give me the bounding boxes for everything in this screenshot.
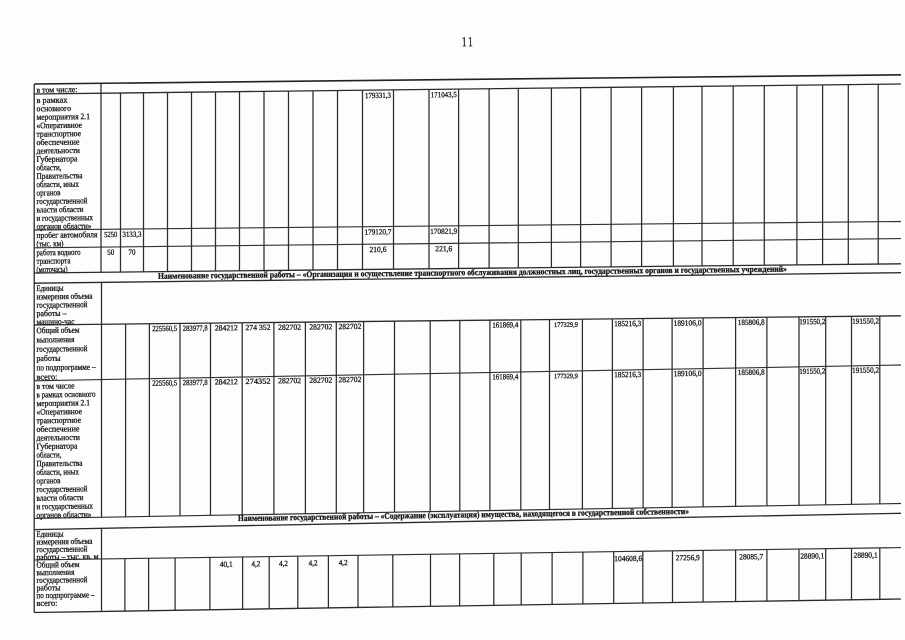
svg-text:191550,2: 191550,2 [799, 367, 825, 376]
svg-text:работы: работы [36, 354, 60, 363]
svg-text:161869,4: 161869,4 [492, 372, 518, 381]
svg-text:283977,8: 283977,8 [183, 324, 208, 333]
svg-text:70: 70 [128, 248, 135, 257]
svg-text:191550,2: 191550,2 [799, 317, 825, 326]
svg-text:284212: 284212 [215, 323, 238, 332]
svg-text:179331,3: 179331,3 [365, 91, 391, 100]
svg-text:189106,0: 189106,0 [674, 318, 702, 327]
svg-text:282702: 282702 [278, 323, 301, 332]
svg-text:282702: 282702 [309, 322, 332, 331]
svg-text:284212: 284212 [215, 377, 238, 386]
svg-text:государственной: государственной [36, 344, 88, 354]
svg-text:221,6: 221,6 [435, 244, 452, 253]
svg-text:28890,1: 28890,1 [800, 551, 824, 560]
svg-text:всего:: всего: [36, 372, 57, 381]
svg-text:5250: 5250 [104, 230, 117, 239]
svg-text:всего:: всего: [36, 599, 57, 608]
svg-text:189106,0: 189106,0 [674, 369, 702, 378]
svg-text:177329,9: 177329,9 [554, 373, 579, 380]
svg-text:191550,2: 191550,2 [852, 366, 879, 375]
svg-text:4,2: 4,2 [339, 558, 348, 567]
svg-text:40,1: 40,1 [220, 560, 233, 569]
svg-text:в том числе:: в том числе: [36, 85, 77, 95]
svg-text:185806,8: 185806,8 [738, 318, 765, 327]
svg-text:185806,8: 185806,8 [738, 368, 765, 377]
svg-text:161869,4: 161869,4 [492, 320, 518, 329]
svg-text:179120,7: 179120,7 [364, 227, 391, 236]
svg-text:1: 1 [462, 35, 467, 50]
svg-text:50: 50 [107, 248, 114, 257]
svg-text:282702: 282702 [338, 322, 361, 331]
svg-text:выполнения: выполнения [36, 335, 74, 345]
svg-text:274352: 274352 [245, 377, 270, 386]
svg-text:4,2: 4,2 [309, 558, 318, 567]
svg-text:177329,9: 177329,9 [554, 322, 579, 329]
svg-text:4,2: 4,2 [251, 559, 260, 568]
svg-text:283977,8: 283977,8 [183, 378, 208, 387]
svg-text:28890,1: 28890,1 [854, 551, 878, 560]
svg-text:225560,5: 225560,5 [152, 378, 177, 387]
svg-text:171043,5: 171043,5 [431, 90, 457, 99]
svg-text:27256,9: 27256,9 [676, 553, 700, 562]
svg-text:1: 1 [468, 35, 473, 50]
svg-text:185216,3: 185216,3 [614, 370, 641, 379]
svg-text:225560,5: 225560,5 [152, 324, 177, 333]
svg-text:3133,3: 3133,3 [122, 230, 141, 239]
svg-text:Общий объем: Общий объем [36, 326, 80, 336]
svg-text:185216,3: 185216,3 [614, 319, 641, 328]
svg-text:274 352: 274 352 [245, 323, 270, 332]
svg-text:191550,2: 191550,2 [852, 316, 879, 325]
svg-text:28085,7: 28085,7 [739, 552, 763, 561]
svg-text:(моточасы): (моточасы) [36, 265, 67, 274]
svg-text:210,6: 210,6 [369, 245, 386, 254]
svg-text:органов области»: органов области» [36, 510, 91, 520]
svg-text:170821,9: 170821,9 [430, 227, 457, 236]
svg-text:по подпрограмме –: по подпрограмме – [36, 363, 96, 373]
svg-text:282702: 282702 [278, 376, 301, 385]
svg-text:104608,6: 104608,6 [614, 554, 642, 563]
svg-text:4,2: 4,2 [279, 559, 288, 568]
svg-text:282702: 282702 [309, 376, 332, 385]
svg-text:282702: 282702 [338, 375, 361, 384]
